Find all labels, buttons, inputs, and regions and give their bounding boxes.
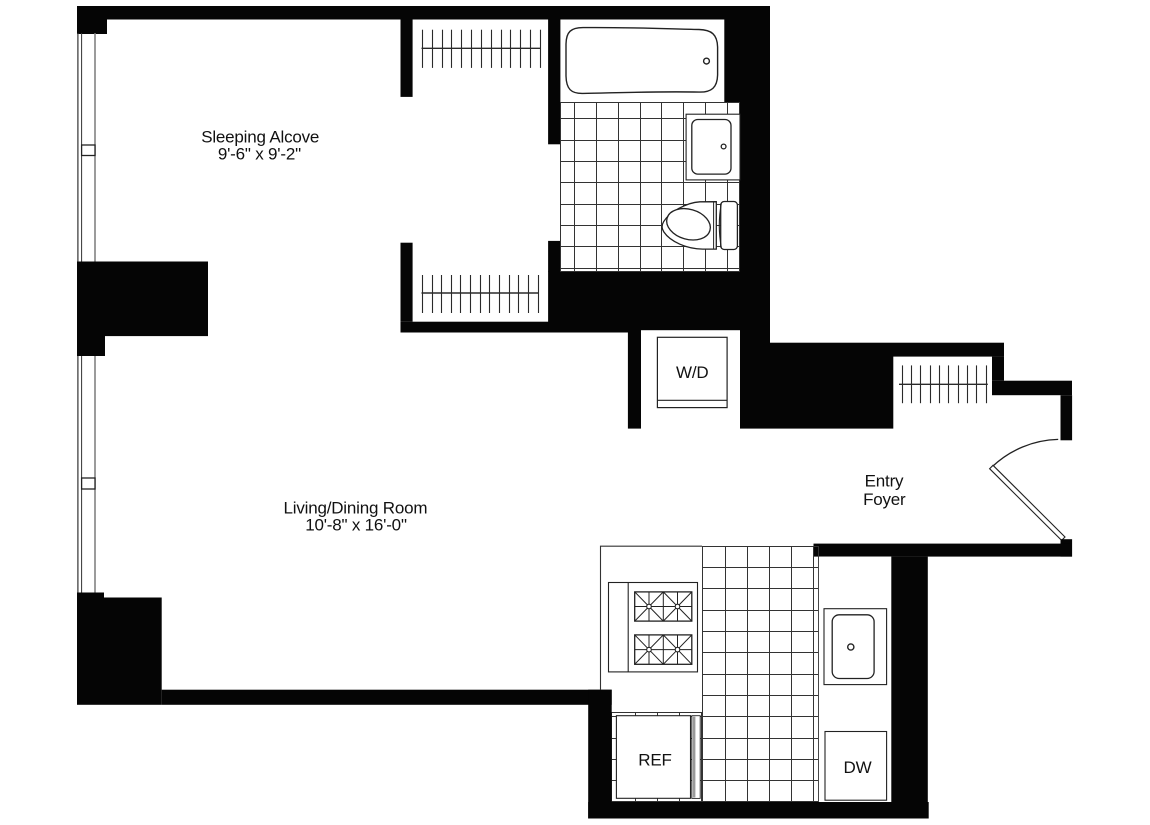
svg-text:9'-6" x 9'-2": 9'-6" x 9'-2" — [218, 145, 301, 164]
svg-text:10'-8" x 16'-0": 10'-8" x 16'-0" — [305, 516, 407, 535]
svg-text:Entry: Entry — [865, 472, 904, 491]
svg-text:DW: DW — [844, 758, 872, 777]
svg-text:Foyer: Foyer — [863, 490, 906, 509]
svg-text:W/D: W/D — [676, 363, 708, 382]
svg-text:REF: REF — [638, 751, 671, 770]
